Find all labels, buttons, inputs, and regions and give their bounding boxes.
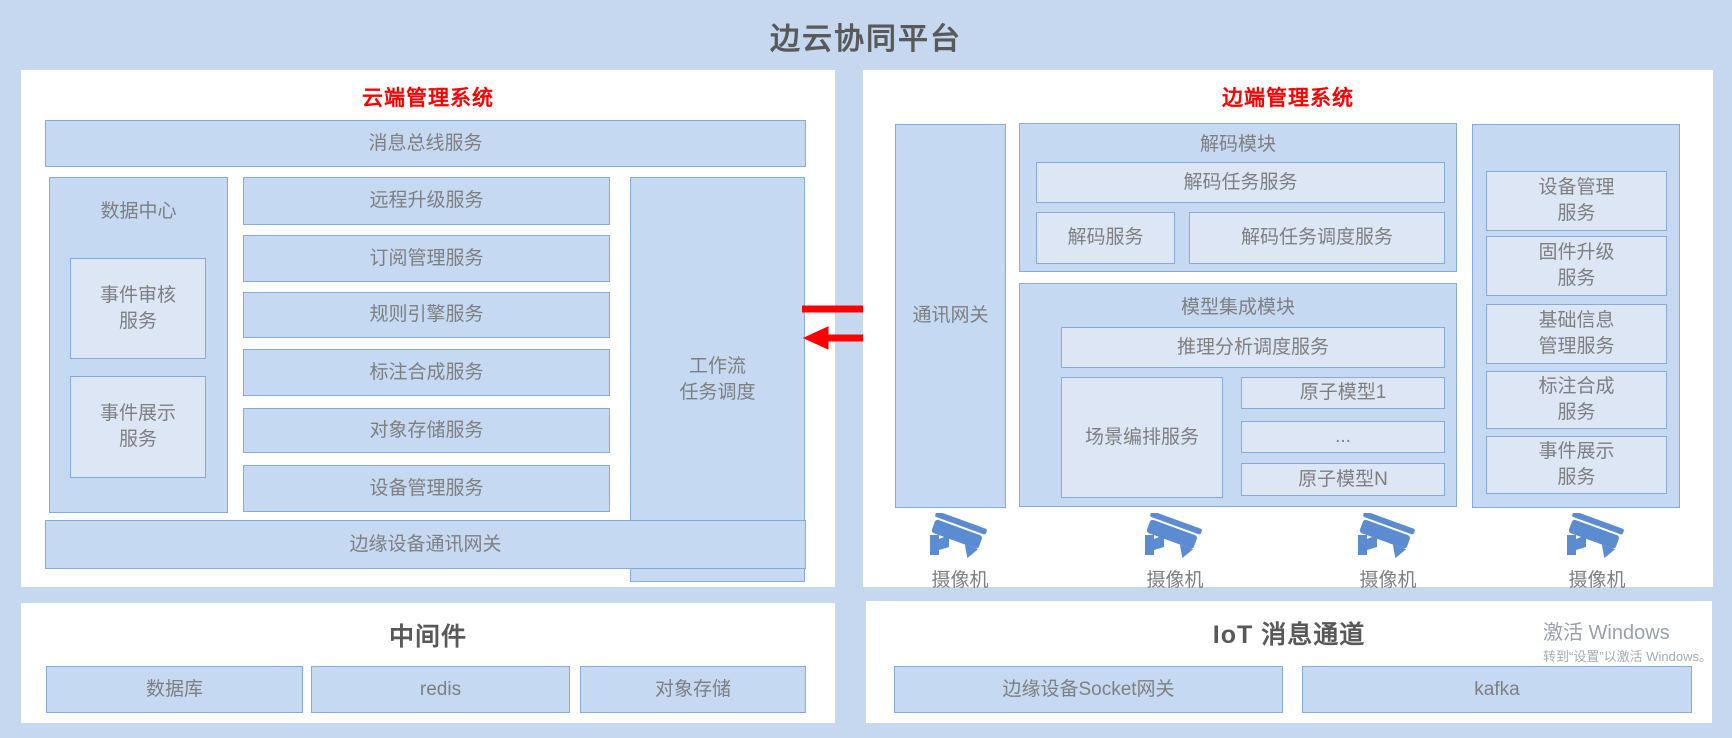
decode-service-box: 解码服务: [1036, 212, 1175, 264]
atomic-model-1-box: 原子模型1: [1241, 377, 1445, 409]
message-bus-service-box: 消息总线服务: [45, 120, 806, 167]
kafka-box: kafka: [1302, 666, 1692, 713]
decode-task-scheduler-box: 解码任务调度服务: [1189, 212, 1445, 264]
event-display-service-box: 事件展示 服务: [70, 376, 206, 478]
edge-panel-title: 边端管理系统: [863, 82, 1713, 112]
edge-device-comm-gateway-box: 边缘设备通讯网关: [45, 520, 806, 569]
windows-activation-watermark-line2: 转到“设置”以激活 Windows。: [1543, 646, 1712, 665]
edge-event-display-service-box: 事件展示 服务: [1486, 436, 1667, 494]
edge-device-services-box: 设备管理 服务 固件升级 服务 基础信息 管理服务 标注合成 服务 事件展示 服…: [1472, 124, 1680, 508]
edge-annotation-compose-service-box: 标注合成 服务: [1486, 371, 1667, 429]
cloud-panel-title: 云端管理系统: [21, 82, 835, 112]
cctv-camera-icon: [927, 513, 993, 561]
inference-scheduler-box: 推理分析调度服务: [1061, 327, 1445, 368]
windows-activation-watermark-line1: 激活 Windows: [1543, 616, 1670, 645]
middleware-title: 中间件: [21, 617, 835, 653]
edge-socket-gateway-box: 边缘设备Socket网关: [894, 666, 1283, 713]
atomic-model-ellipsis-box: ...: [1241, 421, 1445, 453]
scene-orchestration-box: 场景编排服务: [1061, 377, 1223, 498]
device-mgmt-service-box: 设备管理服务: [243, 465, 610, 512]
database-box: 数据库: [46, 666, 303, 713]
annotation-compose-service-box: 标注合成服务: [243, 349, 610, 396]
object-storage-box: 对象存储: [580, 666, 806, 713]
camera-label: 摄像机: [1135, 565, 1215, 592]
rule-engine-service-box: 规则引擎服务: [243, 292, 610, 338]
data-center-label: 数据中心: [50, 196, 227, 223]
edge-cloud-platform-diagram: 边云协同平台 云端管理系统 消息总线服务 数据中心 事件审核 服务 事件展示 服…: [0, 0, 1732, 738]
subscription-mgmt-service-box: 订阅管理服务: [243, 235, 610, 282]
cloud-panel: 云端管理系统 消息总线服务 数据中心 事件审核 服务 事件展示 服务 远程升级服…: [21, 70, 835, 587]
decode-module-label: 解码模块: [1020, 129, 1456, 156]
camera-label: 摄像机: [1348, 565, 1428, 592]
data-center-box: 数据中心 事件审核 服务 事件展示 服务: [49, 177, 228, 513]
atomic-model-n-box: 原子模型N: [1241, 463, 1445, 496]
event-audit-service-box: 事件审核 服务: [70, 258, 206, 359]
camera-label: 摄像机: [1557, 565, 1637, 592]
edge-panel: 边端管理系统 通讯网关 解码模块 解码任务服务 解码服务 解码任务调度服务 模型…: [863, 70, 1713, 587]
redis-box: redis: [311, 666, 570, 713]
model-integration-label: 模型集成模块: [1020, 292, 1456, 319]
basic-info-mgmt-service-box: 基础信息 管理服务: [1486, 304, 1667, 364]
camera-label: 摄像机: [920, 565, 1000, 592]
page-title: 边云协同平台: [0, 14, 1732, 58]
middleware-panel: 中间件 数据库 redis 对象存储: [21, 603, 835, 723]
cctv-camera-icon: [1355, 513, 1421, 561]
decode-task-service-box: 解码任务服务: [1036, 162, 1445, 203]
object-storage-service-box: 对象存储服务: [243, 408, 610, 453]
comm-gateway-box: 通讯网关: [895, 124, 1006, 508]
cctv-camera-icon: [1142, 513, 1208, 561]
cctv-camera-icon: [1564, 513, 1630, 561]
decode-module-box: 解码模块 解码任务服务 解码服务 解码任务调度服务: [1019, 123, 1457, 272]
model-integration-module-box: 模型集成模块 推理分析调度服务 场景编排服务 原子模型1 ... 原子模型N: [1019, 283, 1457, 507]
remote-upgrade-service-box: 远程升级服务: [243, 177, 610, 225]
edge-device-mgmt-service-box: 设备管理 服务: [1486, 171, 1667, 231]
firmware-upgrade-service-box: 固件升级 服务: [1486, 236, 1667, 296]
